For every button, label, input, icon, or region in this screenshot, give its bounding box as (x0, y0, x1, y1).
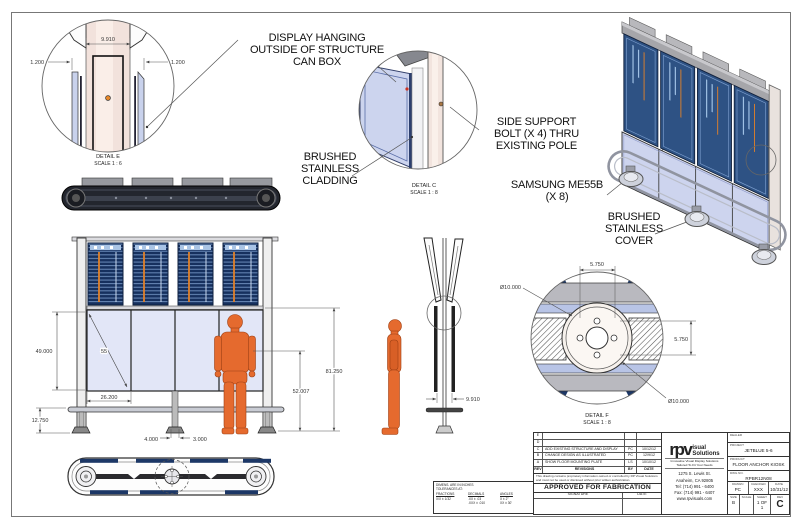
dim-side-width: 9.910 (466, 397, 480, 403)
revision-table: E D C ADD EXISTING STRUCTURE AND DISPLAY… (534, 433, 661, 474)
dim-diagonal: 55 (101, 349, 107, 355)
scale-label: SCALE (741, 496, 752, 499)
human-figure-side (382, 320, 402, 435)
revision-row: E (534, 433, 661, 440)
dealer-label: DEALER (730, 434, 787, 437)
decimals-label: DECIMALS (468, 492, 500, 496)
drawn-date-value: 10/31/12 (770, 487, 788, 492)
signature-field[interactable] (534, 499, 661, 514)
drawn-date-label: DATE (770, 483, 788, 486)
front-screens (88, 243, 258, 305)
detail-f-scale: SCALE 1 : 8 (583, 420, 611, 426)
dim-total-height: 81.250 (326, 369, 343, 375)
title-block: E D C ADD EXISTING STRUCTURE AND DISPLAY… (533, 432, 790, 515)
callout-display-hanging: DISPLAY HANGING OUTSIDE OF STRUCTURE CAN… (240, 32, 394, 68)
detail-c-title: DETAIL C (412, 183, 436, 189)
dim-detail-e-left: 1.200 (30, 60, 44, 66)
dwg-no-value: RPBR12N08 (730, 476, 787, 481)
callout-brushed-cladding: BRUSHED STAINLESS CLADDING (294, 151, 366, 187)
tolerance-header: DIMENS. ARE IN INCHES TOLERANCES AT: (436, 483, 532, 491)
dim-foot-right: 3.000 (193, 437, 207, 443)
logo-tagline: Innovative Visual Display Solutions Tail… (665, 458, 724, 469)
size-value: B (729, 500, 738, 505)
side-support-bolt-glyph (439, 102, 443, 106)
dim-panel-height: 49.000 (36, 349, 53, 355)
drawn-value: PC (729, 487, 747, 492)
project-label: PROJECT (730, 444, 787, 447)
decimals-value: .XX ± .03 .XXX ± .010 (468, 497, 500, 505)
dim-base-height: 12.750 (32, 418, 49, 424)
drawing-sheet: 9.910 1.200 1.200 DETAIL E SCALE 1 : 6 (0, 0, 800, 518)
dia-f-bottom: Ø10.000 (668, 399, 689, 405)
company-address: 1275 S. Lewis St. Anaheim, CA 92805 Tel:… (662, 469, 727, 514)
product-value: FLOOR ANCHOR KIOSK (730, 462, 787, 467)
revision-row: C ADD EXISTING STRUCTURE AND DISPLAY PC … (534, 447, 661, 454)
rpv-logo: rpv isual Solutions (662, 433, 727, 457)
rev-value: C (772, 500, 788, 510)
product-label: PRODUCT (730, 458, 787, 461)
top-plan-view (62, 178, 280, 210)
revision-row: A SHOW FLOOR MOUNTING PLATE LS 10/10/12 (534, 460, 661, 467)
dim-mid-height: 52.007 (293, 389, 310, 395)
dia-f-top: Ø10.000 (500, 285, 521, 291)
detail-f-view: 5.750 5.750 Ø10.000 Ø10.000 DETAIL F SCA… (500, 262, 696, 426)
detail-e-scale: SCALE 1 : 6 (94, 161, 122, 167)
dim-f-right: 5.750 (674, 337, 688, 343)
tolerance-block: DIMENS. ARE IN INCHES TOLERANCES AT: FRA… (433, 481, 535, 514)
dim-foot-left: 4.000 (144, 437, 158, 443)
fractions-value: X/X ± 1/32 (436, 497, 468, 501)
signature-label: SIGNATURE (534, 493, 623, 498)
detail-e-view: 9.910 1.200 1.200 DETAIL E SCALE 1 : 6 (30, 18, 185, 167)
detail-ref-circle-side (427, 296, 461, 330)
callout-brushed-cover: BRUSHED STAINLESS COVER (599, 211, 669, 247)
size-label: SIZE (729, 496, 738, 499)
dwg-no-label: DWG NO. (730, 472, 787, 475)
revision-header-row: REV REVISIONS BY DATE (534, 467, 661, 473)
angles-label: ANGLES (500, 492, 532, 496)
sheet-label: SHEET (755, 496, 769, 499)
detail-f-title: DETAIL F (585, 413, 609, 419)
sheet-value: 1 OF 1 (755, 500, 769, 510)
detail-c-view: DETAIL C SCALE 1 : 8 (359, 46, 477, 196)
checked-value: XXX (750, 487, 768, 492)
callout-side-support: SIDE SUPPORT BOLT (X 4) THRU EXISTING PO… (480, 116, 593, 152)
dim-panel-width: 26.200 (101, 395, 118, 401)
date-label: DATE (623, 493, 661, 498)
fractions-label: FRACTIONS (436, 492, 468, 496)
front-elevation-view: 55 (32, 237, 343, 443)
checked-label: CHECKED (750, 483, 768, 486)
callout-samsung: SAMSUNG ME55B (X 8) (504, 179, 610, 203)
project-value: JETBLUE 5-6 (730, 448, 787, 453)
angles-value: X ± 2° XX ± 30' (500, 497, 532, 505)
detail-e-title: DETAIL E (96, 154, 120, 160)
proprietary-note: This drawing contains proprietary inform… (534, 474, 661, 484)
anchor-bolt-glyph (106, 96, 111, 101)
bottom-plan-view (68, 458, 274, 495)
red-bolt-glyph (405, 87, 408, 90)
side-view: 9.910 (382, 238, 480, 435)
detail-c-scale: SCALE 1 : 8 (410, 190, 438, 196)
drawn-label: DRAWN (729, 483, 747, 486)
dim-detail-e-right: 1.200 (171, 60, 185, 66)
revision-row: D (534, 440, 661, 447)
dim-detail-e-width: 9.910 (101, 37, 115, 43)
dim-f-top: 5.750 (590, 262, 604, 268)
